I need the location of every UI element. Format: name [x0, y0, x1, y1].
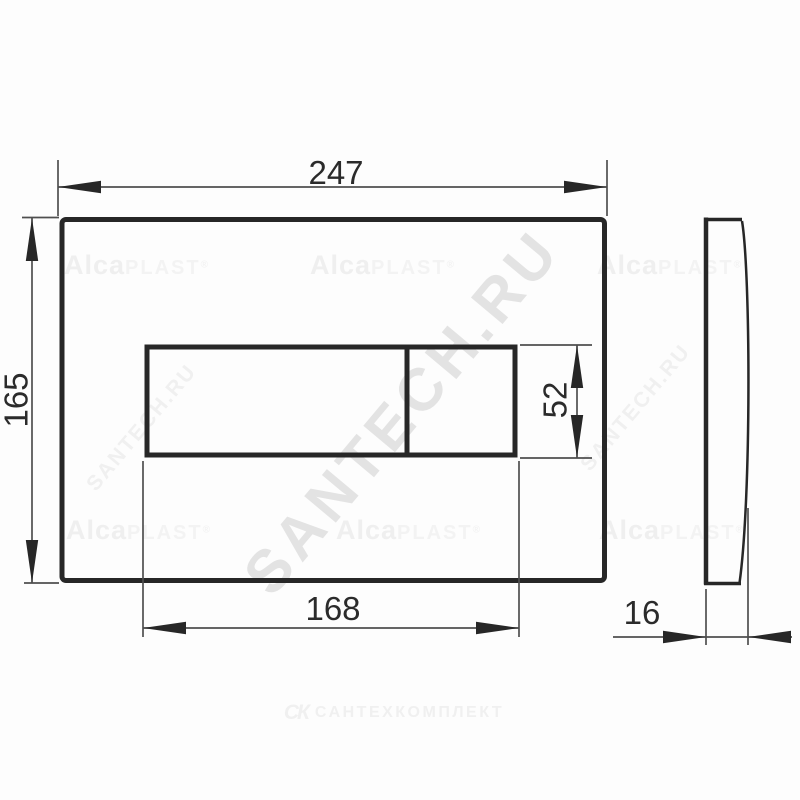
- dim-buttons-width-label: 168: [305, 590, 360, 627]
- dimension-drawing: 247 165 52 168 16: [0, 0, 800, 800]
- dim-depth-arrow-right: [748, 631, 791, 643]
- dim-button-height-arrow-top: [571, 345, 583, 388]
- dim-button-width-arrow-left: [143, 622, 186, 634]
- dim-button-height-arrow-bottom: [571, 415, 583, 458]
- dim-height-arrow-bottom: [26, 540, 38, 583]
- drawing-canvas: AlcaPLAST® AlcaPLAST® AlcaPLAST® AlcaPLA…: [0, 0, 800, 800]
- button-panel-outline: [147, 347, 515, 455]
- dim-width-arrow-right: [564, 181, 607, 193]
- dim-button-width-arrow-right: [476, 622, 519, 634]
- dim-plate-depth-label: 16: [624, 594, 661, 631]
- dim-plate-height-label: 165: [0, 372, 35, 427]
- dim-depth-arrow-left: [663, 631, 706, 643]
- dim-buttons-height-label: 52: [537, 382, 574, 419]
- dim-height-arrow-top: [26, 218, 38, 261]
- side-view-curved-face: [740, 221, 749, 583]
- dim-plate-width-label: 247: [308, 154, 363, 191]
- dim-width-arrow-left: [58, 181, 101, 193]
